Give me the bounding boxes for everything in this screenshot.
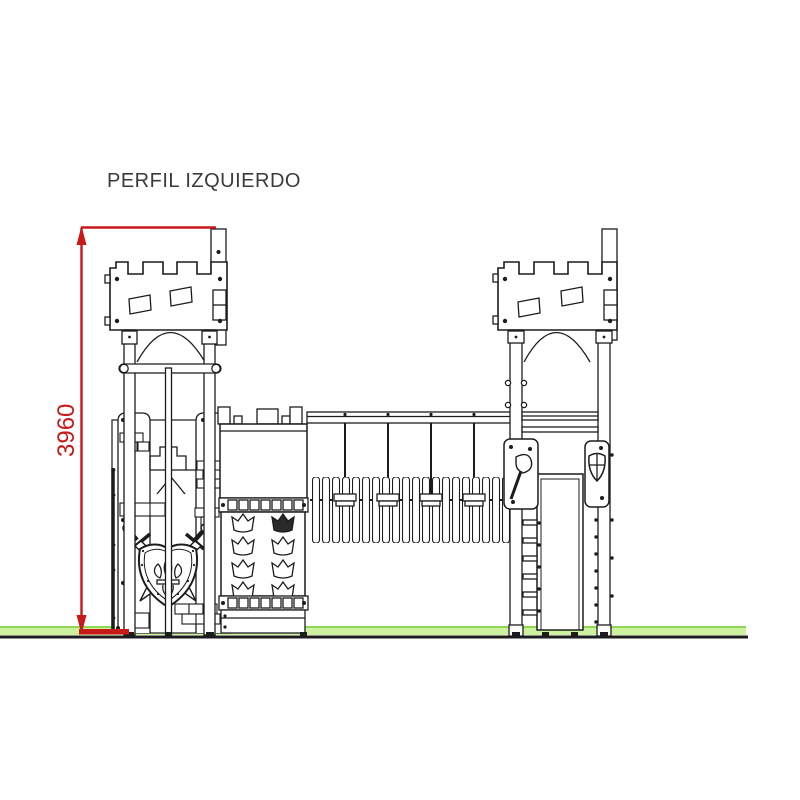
rope-bridge (307, 412, 513, 543)
ladder-rungs (523, 520, 537, 615)
right-tower (493, 229, 617, 638)
page-title: PERFIL IZQUIERDO (107, 170, 301, 192)
technical-drawing: 3960 PERFIL IZQUIERDO (0, 0, 800, 800)
slide-channel (537, 474, 583, 630)
battlement-panel (110, 262, 227, 330)
axe-panel (504, 439, 538, 509)
tower-window (561, 287, 583, 306)
deck-band (219, 596, 308, 610)
tower-arch (137, 333, 205, 363)
crown-climbing-wall (218, 407, 308, 633)
tower-window (170, 287, 192, 306)
bridge-top-beam (307, 412, 513, 423)
deck-band (219, 498, 308, 512)
battlement-panel (498, 262, 617, 330)
tower-window (518, 298, 540, 317)
castle-playground-structure (105, 229, 617, 638)
tower-leg (124, 330, 135, 635)
dimension-arrow-up (77, 226, 87, 245)
tower-leg (204, 330, 215, 635)
bridge-slats (312, 477, 512, 543)
drawing-canvas: 3960 PERFIL IZQUIERDO (0, 0, 800, 800)
tower-window (129, 295, 151, 314)
shield-panel (585, 441, 609, 507)
center-pole (166, 368, 172, 635)
dimension-label: 3960 (53, 404, 80, 457)
tower-arch (524, 333, 590, 363)
